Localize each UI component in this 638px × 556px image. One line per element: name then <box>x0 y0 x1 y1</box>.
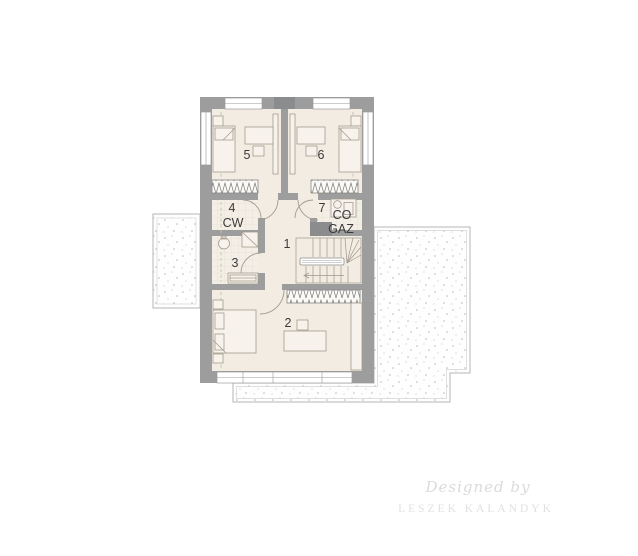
nightstand <box>213 116 223 126</box>
watermark-author: LESZEK KALANDYK <box>398 503 554 515</box>
floor-plan-page: 5 6 4 CW 7 CO GAZ 1 3 2 Designed by LESZ… <box>0 0 638 556</box>
partition-wall <box>281 109 288 200</box>
bed-single <box>213 126 235 172</box>
boiler-co-label: CO <box>333 208 352 222</box>
watermark-designed-by: Designed by <box>425 478 531 496</box>
nightstand <box>351 116 361 126</box>
desk <box>297 127 325 144</box>
wardrobe-room2 <box>287 290 360 303</box>
room6-label: 6 <box>318 148 325 162</box>
floor-plan-canvas: 5 6 4 CW 7 CO GAZ 1 3 2 Designed by LESZ… <box>0 0 638 556</box>
room4-label: 4 <box>229 201 236 215</box>
room1-label: 1 <box>284 237 291 251</box>
closet-cw-label: CW <box>223 216 244 230</box>
nightstand <box>213 354 223 363</box>
room7-label: 7 <box>319 201 326 215</box>
bed-double <box>213 310 256 353</box>
wardrobe-room5 <box>212 180 258 193</box>
wardrobe-room6 <box>311 180 358 193</box>
window-room5-top <box>225 98 262 109</box>
washbasin <box>219 238 230 249</box>
window-room5-left <box>201 112 211 165</box>
radiator <box>228 273 258 283</box>
window-room6-top <box>313 98 350 109</box>
desk <box>284 331 326 351</box>
tall-cabinet <box>351 303 362 370</box>
watermark: Designed by LESZEK KALANDYK <box>398 478 554 515</box>
left-roof-terrace <box>153 214 200 308</box>
chimney <box>274 97 295 109</box>
chair <box>297 320 308 330</box>
room2-label: 2 <box>285 316 292 330</box>
window-room6-right <box>363 112 373 165</box>
chair <box>306 146 317 156</box>
shower <box>242 232 258 247</box>
stair-handrail <box>300 258 344 265</box>
window-room2-bottom <box>217 372 352 383</box>
boiler-gaz-label: GAZ <box>328 222 354 236</box>
nightstand <box>213 300 223 309</box>
bed-single <box>339 126 361 172</box>
chair <box>253 146 264 156</box>
room5-label: 5 <box>244 148 251 162</box>
room3-label: 3 <box>232 256 239 270</box>
desk <box>245 127 273 144</box>
